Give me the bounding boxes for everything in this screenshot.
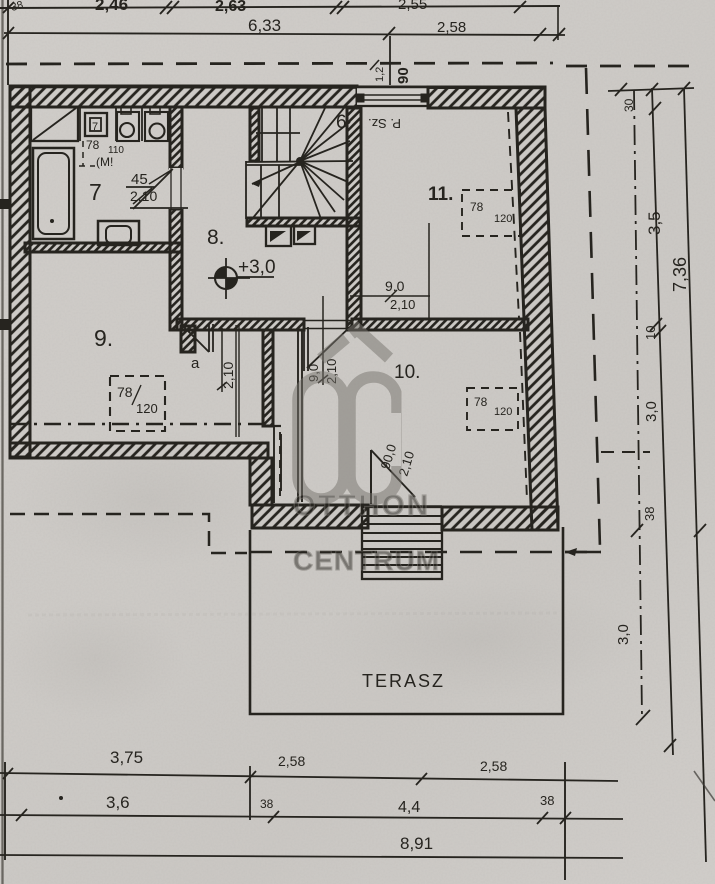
svg-text:2,55: 2,55 [398, 0, 427, 13]
svg-text:2,58: 2,58 [278, 753, 305, 769]
svg-text:2,46: 2,46 [95, 0, 128, 14]
svg-text:3,75: 3,75 [110, 748, 143, 767]
svg-text:38: 38 [642, 507, 657, 521]
svg-text:78: 78 [470, 200, 484, 214]
svg-text:2,58: 2,58 [437, 19, 466, 36]
svg-text:3,0: 3,0 [615, 624, 632, 645]
svg-text:2,10: 2,10 [130, 188, 157, 204]
svg-text:38: 38 [540, 793, 554, 808]
svg-text:3,0: 3,0 [643, 401, 660, 422]
svg-text:9,0: 9,0 [385, 278, 405, 294]
svg-text:2,10: 2,10 [390, 297, 415, 312]
svg-text:CENTRUM: CENTRUM [293, 545, 440, 576]
svg-text:78: 78 [474, 395, 488, 409]
svg-text:45: 45 [131, 171, 148, 188]
svg-text:7: 7 [92, 121, 98, 133]
svg-text:2,58: 2,58 [480, 758, 507, 774]
svg-text:2,63: 2,63 [215, 0, 246, 15]
svg-text:OTTHON: OTTHON [293, 490, 430, 522]
svg-text:120: 120 [494, 406, 512, 418]
svg-text:7: 7 [89, 179, 102, 205]
svg-text:7,36: 7,36 [670, 257, 690, 292]
svg-text:6: 6 [336, 112, 347, 133]
svg-text:TERASZ: TERASZ [362, 671, 445, 691]
svg-text:120: 120 [136, 401, 158, 416]
svg-text:30: 30 [622, 98, 636, 112]
svg-text:+3,0: +3,0 [238, 257, 276, 278]
svg-text:10: 10 [643, 326, 658, 340]
svg-text:P. Sz.: P. Sz. [368, 116, 401, 131]
svg-text:9.: 9. [94, 325, 113, 351]
svg-text:3,6: 3,6 [106, 793, 130, 812]
svg-text:78: 78 [86, 138, 100, 152]
svg-text:38: 38 [260, 797, 274, 811]
svg-text:90: 90 [395, 67, 412, 84]
svg-text:4,4: 4,4 [398, 799, 420, 816]
svg-text:120: 120 [494, 213, 512, 225]
svg-text:8,91: 8,91 [400, 834, 433, 853]
svg-text:6,33: 6,33 [248, 16, 281, 35]
svg-text:(M!: (M! [96, 155, 113, 169]
svg-text:a: a [191, 355, 200, 372]
svg-text:1,2: 1,2 [374, 67, 386, 82]
svg-text:3,5: 3,5 [645, 211, 664, 235]
svg-text:11.: 11. [428, 184, 453, 205]
svg-text:78: 78 [117, 384, 133, 400]
svg-text:8.: 8. [207, 226, 225, 249]
svg-text:10.: 10. [394, 362, 420, 383]
svg-text:2,10: 2,10 [220, 362, 236, 389]
